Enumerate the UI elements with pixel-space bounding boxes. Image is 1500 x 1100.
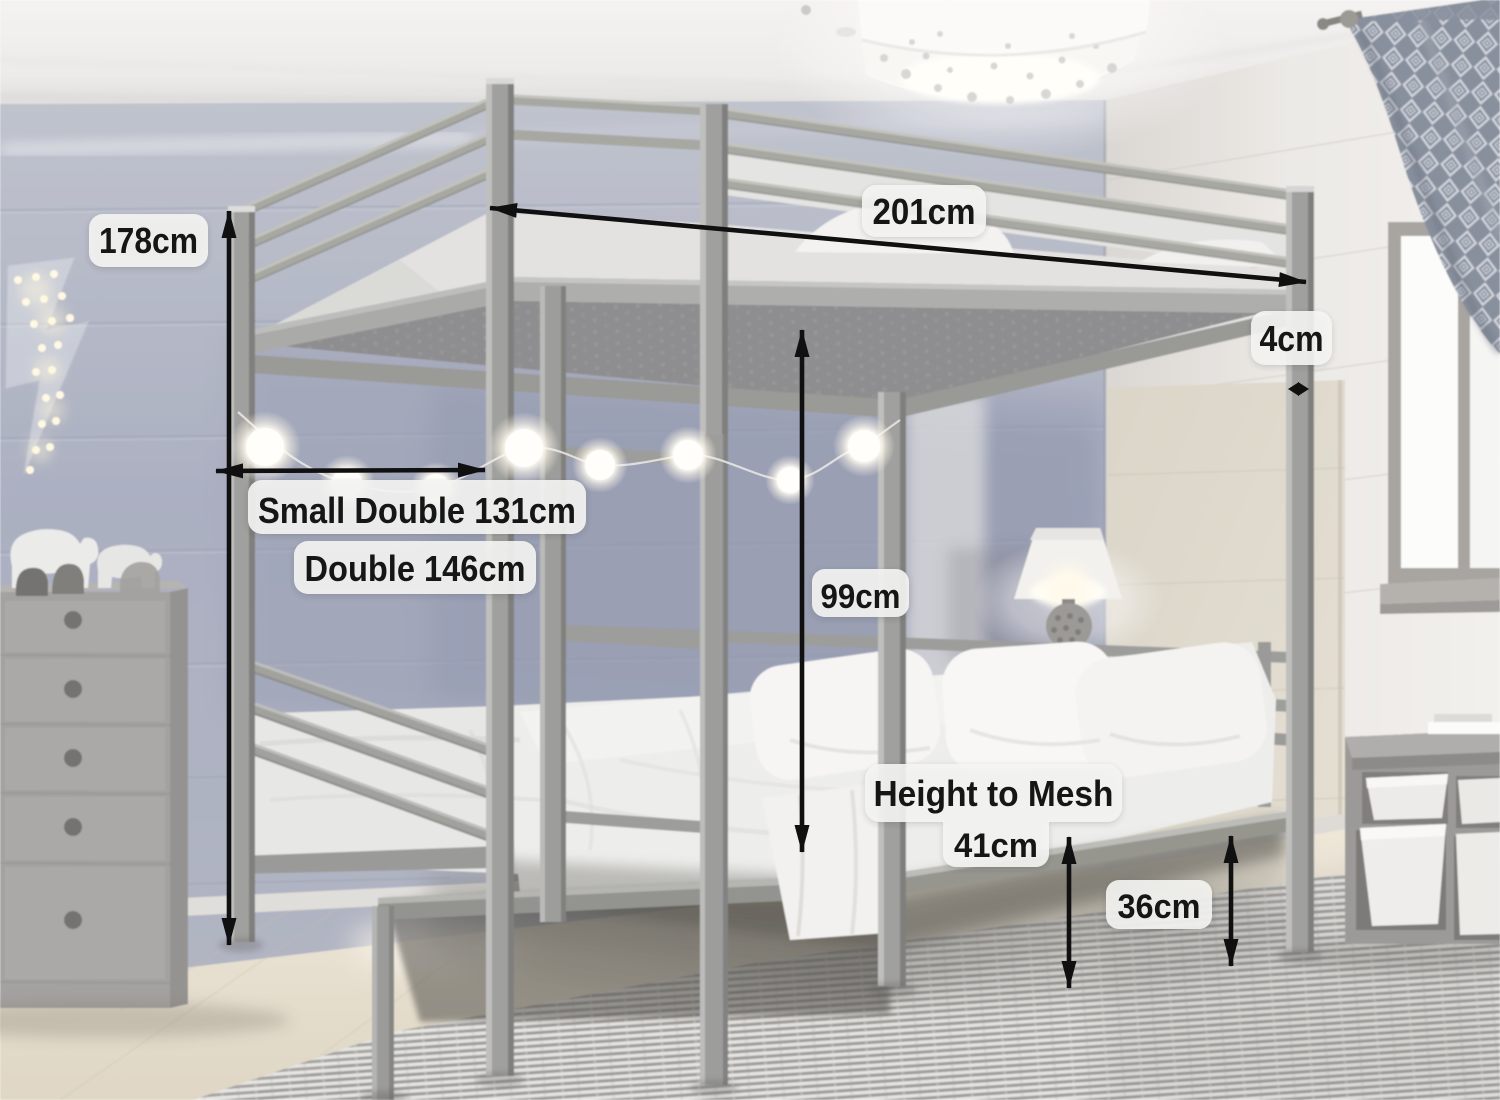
svg-text:Double 146cm: Double 146cm [305, 548, 526, 589]
svg-text:36cm: 36cm [1118, 888, 1201, 926]
svg-text:178cm: 178cm [99, 220, 198, 261]
svg-text:Small Double 131cm: Small Double 131cm [258, 490, 576, 531]
svg-text:Height to Mesh: Height to Mesh [874, 773, 1114, 814]
svg-text:4cm: 4cm [1260, 318, 1324, 359]
svg-text:99cm: 99cm [821, 578, 901, 616]
svg-text:201cm: 201cm [873, 191, 976, 232]
svg-text:41cm: 41cm [954, 827, 1038, 865]
